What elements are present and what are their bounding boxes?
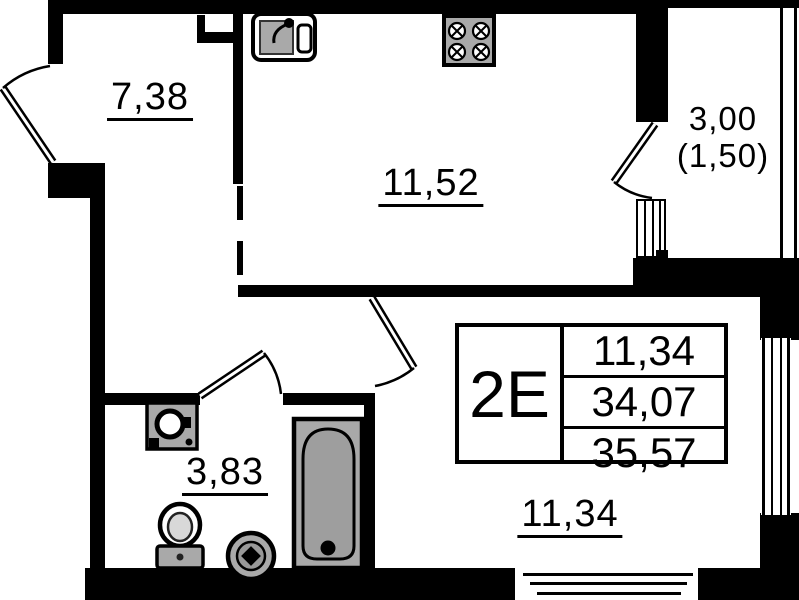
window-mullion [644,201,646,256]
stove-icon [444,16,494,65]
wall-entry-step [48,163,105,198]
living-room-bottom-window [515,570,698,600]
window-mullion [780,338,782,515]
wall-right-top-block [760,287,799,340]
wall-kitchen-balcony [636,0,668,122]
bathroom-area-label: 3,83 [182,453,268,496]
wall-window-stub [656,250,668,262]
bathroom-door [200,353,281,396]
window-sill-line [530,582,687,585]
window-sill-line [537,592,681,595]
apartment-info-box: 2Е 11,34 34,07 35,57 [455,323,728,464]
apartment-area-value: 34,07 [564,378,724,429]
window-mullion [659,201,661,256]
window-mullion [652,201,654,256]
window-mullion [771,338,773,515]
wall-left-top [48,0,63,64]
wall-left-main [90,198,105,570]
sink-icon [253,14,315,60]
living-room-area-label: 11,34 [517,495,622,538]
window-mullion [787,338,790,515]
window-mullion [762,338,765,515]
washing-machine-icon [147,403,197,449]
wall-bath-right [364,393,375,570]
wall-bottom-left [85,568,515,600]
wall-vent-sliver [197,15,205,33]
bathtub-icon [294,419,362,568]
kitchen-area-label: 11,52 [378,164,483,207]
living-room-door [372,298,414,386]
unit-type-cell: 2Е [459,327,564,460]
floor-plan: 7,38 11,52 3,00 (1,50) 3,83 11,34 2Е 11,… [0,0,799,600]
window-sill-line [523,573,693,576]
wall-top-balcony [668,0,799,8]
wall-bath-top-right [283,393,375,405]
living-room-right-window [761,338,791,515]
wall-balcony-bottom [633,258,799,287]
wall-vent-bar [197,32,243,43]
wall-top-main [48,0,638,14]
balcony-glazing-window [780,8,797,258]
hallway-area-label: 7,38 [107,78,193,121]
balcony-area-label: 3,00 (1,50) [677,100,769,174]
total-area-value: 35,57 [564,429,724,477]
balcony-door [614,124,655,198]
wall-bottom-right [698,568,799,600]
entry-door [3,66,53,162]
wall-bath-top-left [105,393,200,405]
living-area-value: 11,34 [564,327,724,378]
toilet-icon [157,504,203,568]
